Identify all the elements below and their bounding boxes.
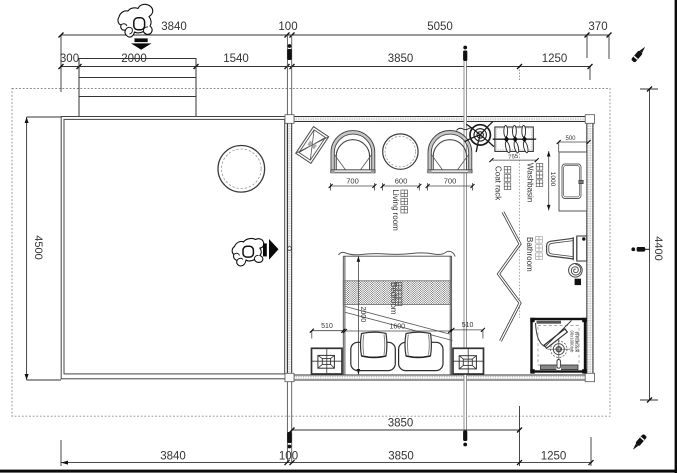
svg-text:1540: 1540 (223, 53, 249, 65)
svg-text:600: 600 (395, 176, 408, 185)
svg-text:2000: 2000 (359, 307, 366, 323)
svg-text:3840: 3840 (160, 451, 186, 463)
svg-text:3850: 3850 (388, 418, 414, 430)
svg-text:4500: 4500 (32, 235, 44, 259)
svg-text:510: 510 (462, 322, 474, 329)
svg-text:510: 510 (321, 323, 333, 330)
svg-text:1250: 1250 (541, 451, 567, 463)
svg-text:3850: 3850 (388, 451, 414, 463)
svg-text:Bathroom: Bathroom (525, 237, 534, 272)
svg-text:Bedroom: Bedroom (389, 282, 398, 315)
svg-text:3840: 3840 (161, 21, 187, 33)
svg-text:1250: 1250 (542, 53, 568, 65)
svg-text:370: 370 (588, 21, 607, 33)
svg-text:500: 500 (565, 136, 576, 142)
svg-text:1600: 1600 (390, 323, 406, 330)
svg-text:100: 100 (278, 21, 297, 33)
svg-text:Living room: Living room (391, 190, 400, 232)
svg-text:00x1000tub: 00x1000tub (570, 331, 575, 354)
svg-text:砖砌淋浴房: 砖砌淋浴房 (574, 332, 581, 353)
svg-text:Washbasin: Washbasin (526, 163, 535, 202)
svg-text:3850: 3850 (388, 53, 414, 65)
svg-text:Coat rack: Coat rack (493, 166, 502, 201)
svg-text:700: 700 (346, 176, 359, 185)
svg-text:700: 700 (444, 176, 457, 185)
svg-text:1000: 1000 (549, 172, 556, 187)
svg-text:100: 100 (279, 451, 298, 463)
svg-text:300: 300 (60, 53, 79, 65)
svg-text:4400: 4400 (652, 236, 664, 260)
svg-text:5050: 5050 (427, 21, 453, 33)
